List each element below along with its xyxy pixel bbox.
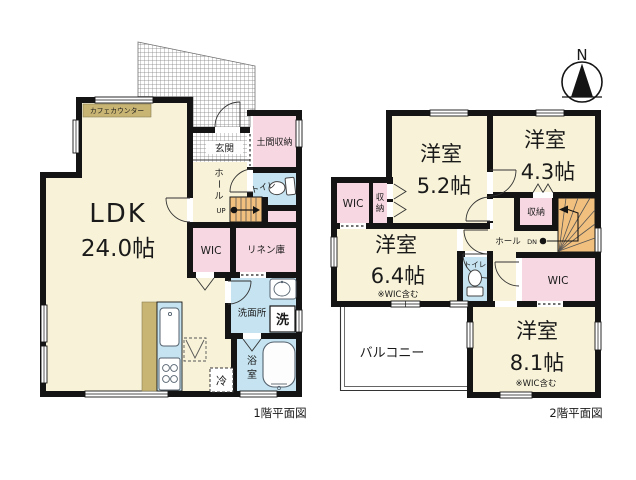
cafe-counter-label: カフェカウンター	[90, 106, 145, 115]
room52-size: 5.2帖	[417, 174, 471, 198]
room64-size: 6.4帖	[371, 264, 425, 288]
closet-strip-1f	[268, 211, 296, 222]
doma-storage-label: 土間収納	[256, 136, 292, 148]
stove-icon	[159, 358, 180, 390]
room43-size: 4.3帖	[521, 160, 575, 184]
hall-label-1f: ホ ー ル	[213, 168, 224, 202]
second-floor-plan: 洋室 5.2帖 洋室 4.3帖 洋室 6.4帖 ※WIC含む 洋室 8.1帖 ※…	[331, 110, 603, 420]
floor1-caption: 1階平面図	[253, 406, 306, 420]
room52-label: 洋室	[420, 142, 462, 166]
ldk-size-label: 24.0帖	[81, 236, 155, 262]
room81-size: 8.1帖	[510, 351, 564, 375]
bathtub-icon	[263, 342, 295, 390]
hall-label-2f: ホール	[495, 237, 521, 247]
balcony-label: バルコニー	[360, 346, 425, 361]
first-floor-plan: UP カフェカウンター	[40, 42, 307, 420]
north-arrow	[571, 64, 593, 98]
kitchen-sink-icon	[160, 308, 179, 346]
hall-char-3: ル	[214, 192, 223, 202]
wic-left-label: WIC	[343, 198, 364, 210]
bath-char-2: 室	[247, 368, 257, 381]
room81-note: ※WIC含む	[516, 378, 557, 389]
dn-label: DN	[527, 238, 537, 246]
bath-char-1: 浴	[247, 355, 257, 367]
genkan-label: 玄関	[215, 143, 234, 155]
closet-left-char-1: 収	[376, 192, 385, 203]
compass: N	[562, 46, 602, 102]
floor2-caption: 2階平面図	[549, 406, 602, 420]
washroom-label: 洗面所	[238, 307, 267, 319]
closet-mid-label: 収納	[527, 206, 545, 218]
linen-label: リネン庫	[247, 244, 286, 256]
stairs-up	[230, 197, 262, 222]
vestibule-2f	[460, 229, 493, 253]
wic-label-1f: WIC	[201, 245, 222, 257]
room-closet-left	[373, 183, 387, 223]
toilet-icon-2f	[467, 270, 483, 296]
genkan-label-group: 玄関	[206, 141, 243, 155]
hall-char-1: ホ	[214, 168, 223, 179]
room64-label: 洋室	[375, 233, 417, 257]
floor-plan-page: UP カフェカウンター	[0, 0, 636, 480]
toilet-label-2f: トイレ	[464, 260, 487, 269]
hall-char-2: ー	[213, 179, 223, 188]
fridge-label: 冷	[216, 375, 227, 388]
washer-label: 洗	[276, 312, 289, 328]
room-52	[392, 116, 487, 223]
closet-left-char-2: 納	[376, 203, 385, 214]
room81-label: 洋室	[516, 319, 558, 343]
room64-note: ※WIC含む	[378, 289, 419, 300]
floor-plan-canvas: UP カフェカウンター	[0, 0, 636, 480]
kitchen-counter	[142, 302, 182, 391]
ldk-label: LDK	[89, 199, 147, 229]
room43-label: 洋室	[524, 128, 566, 152]
up-label: UP	[216, 207, 225, 215]
wic-right-label: WIC	[548, 275, 569, 287]
sink-icon	[270, 279, 296, 299]
